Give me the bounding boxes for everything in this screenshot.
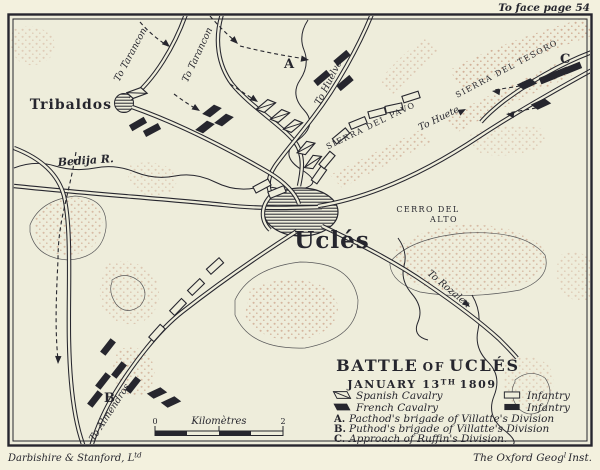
title-word-battle: BATTLE <box>336 356 419 375</box>
legend-spanish-infantry-symbol <box>504 392 519 398</box>
title-block: BATTLEOFUCLÉS JANUARY 13TH1809 <box>336 355 520 391</box>
legend-spanish-cavalry-label: Spanish Cavalry <box>356 390 444 402</box>
battle-map-svg: Tribaldos Uclés Bedija R. To Tarancon To… <box>0 0 600 470</box>
legend-spanish-infantry-label: Infantry <box>526 390 571 402</box>
cerro-del-alto-label-line2: ALTO <box>429 215 458 224</box>
unit-group-label-c: C <box>560 52 570 67</box>
date-superscript: TH <box>441 378 457 387</box>
unit-group-label-b: B <box>104 391 115 406</box>
top-note: To face page 54 <box>498 2 590 14</box>
ucles-label: Uclés <box>294 227 369 254</box>
legend-note-c-key: C. <box>334 434 345 445</box>
legend-note-c-text: Approach of Ruffin's Division. <box>348 433 507 445</box>
credit-right-tail: Inst. <box>567 452 592 464</box>
credit-right-superscript: l <box>564 452 566 460</box>
legend-spanish-cavalry-symbol <box>333 392 350 399</box>
title-word-of: OF <box>423 360 446 374</box>
scale-bar-segment <box>219 431 251 436</box>
cerro-del-alto-label-line1: CERRO DEL <box>396 205 459 214</box>
credit-right: The Oxford GeoglInst. <box>473 452 592 465</box>
scale-bar-segment <box>155 431 187 436</box>
title-word-ucles: UCLÉS <box>449 355 520 375</box>
legend-french-infantry-symbol <box>504 404 519 410</box>
map-plate: Tribaldos Uclés Bedija R. To Tarancon To… <box>0 0 600 470</box>
unit-group-label-a: A <box>283 57 295 72</box>
scale-tick-2: 2 <box>280 417 285 426</box>
tribaldos-label: Tribaldos <box>30 97 112 113</box>
credit-right-main: The Oxford Geog <box>473 452 564 464</box>
map-date: JANUARY 13TH1809 <box>346 378 496 392</box>
date-year: 1809 <box>460 378 497 391</box>
credit-left-superscript: td <box>134 452 142 460</box>
scale-tick-0: 0 <box>152 417 157 426</box>
credit-left: Darbishire & Stanford, Ltd <box>7 452 142 465</box>
credit-left-main: Darbishire & Stanford, L <box>7 453 135 464</box>
